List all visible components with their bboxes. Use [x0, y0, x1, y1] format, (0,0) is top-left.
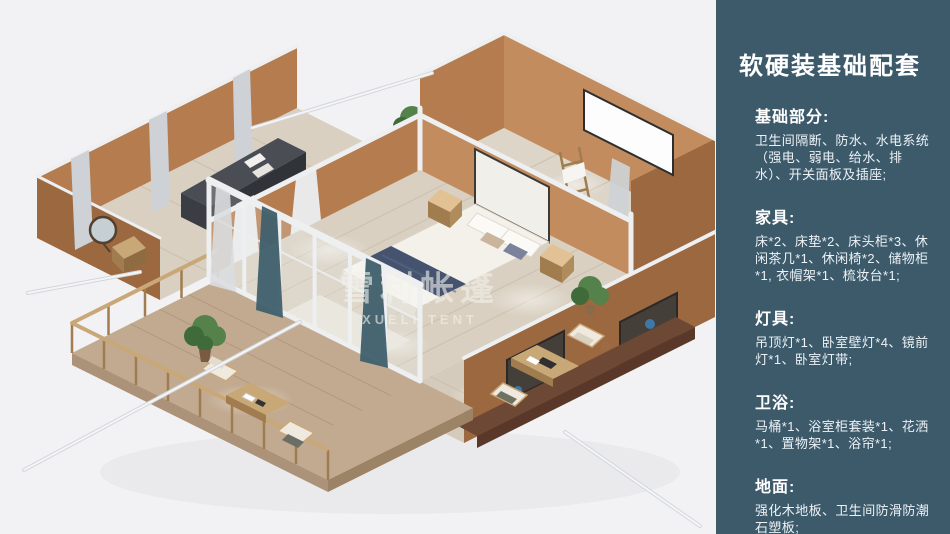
spec-heading: 基础部分:	[755, 103, 934, 127]
spec-body: 强化木地板、卫生间防滑防潮石塑板;	[755, 502, 934, 534]
spec-body: 吊顶灯*1、卧室壁灯*4、镜前灯*1、卧室灯带;	[755, 334, 934, 368]
spec-body: 床*2、床垫*2、床头柜*3、休闲茶几*1、休闲椅*2、储物柜*1, 衣帽架*1…	[755, 233, 934, 284]
watermark: 雪利帐篷 XUELI TENT	[340, 270, 500, 327]
spec-heading: 灯具:	[755, 305, 934, 329]
watermark-en: XUELI TENT	[362, 312, 478, 327]
spec-section-furniture: 家具: 床*2、床垫*2、床头柜*3、休闲茶几*1、休闲椅*2、储物柜*1, 衣…	[755, 204, 934, 284]
spec-section-lighting: 灯具: 吊顶灯*1、卧室壁灯*4、镜前灯*1、卧室灯带;	[755, 305, 934, 368]
spec-section-basics: 基础部分: 卫生间隔断、防水、水电系统（强电、弱电、给水、排水）、开关面板及插座…	[755, 103, 934, 183]
watermark-cn: 雪利帐篷	[340, 270, 500, 308]
spec-section-bathroom: 卫浴: 马桶*1、浴室柜套装*1、花洒*1、置物架*1、浴帘*1;	[755, 389, 934, 452]
floorplan-render: 雪利帐篷 XUELI TENT	[0, 0, 716, 534]
spec-sections: 基础部分: 卫生间隔断、防水、水电系统（强电、弱电、给水、排水）、开关面板及插座…	[739, 103, 934, 534]
spec-body: 马桶*1、浴室柜套装*1、花洒*1、置物架*1、浴帘*1;	[755, 418, 934, 452]
spec-heading: 地面:	[755, 473, 934, 497]
spec-heading: 卫浴:	[755, 389, 934, 413]
slide: 雪利帐篷 XUELI TENT 软硬装基础配套 基础部分: 卫生间隔断、防水、水…	[0, 0, 950, 534]
panel-title: 软硬装基础配套	[739, 46, 934, 81]
spec-section-flooring: 地面: 强化木地板、卫生间防滑防潮石塑板;	[755, 473, 934, 534]
info-panel: 软硬装基础配套 基础部分: 卫生间隔断、防水、水电系统（强电、弱电、给水、排水）…	[716, 0, 950, 534]
spec-heading: 家具:	[755, 204, 934, 228]
spec-body: 卫生间隔断、防水、水电系统（强电、弱电、给水、排水）、开关面板及插座;	[755, 132, 934, 183]
